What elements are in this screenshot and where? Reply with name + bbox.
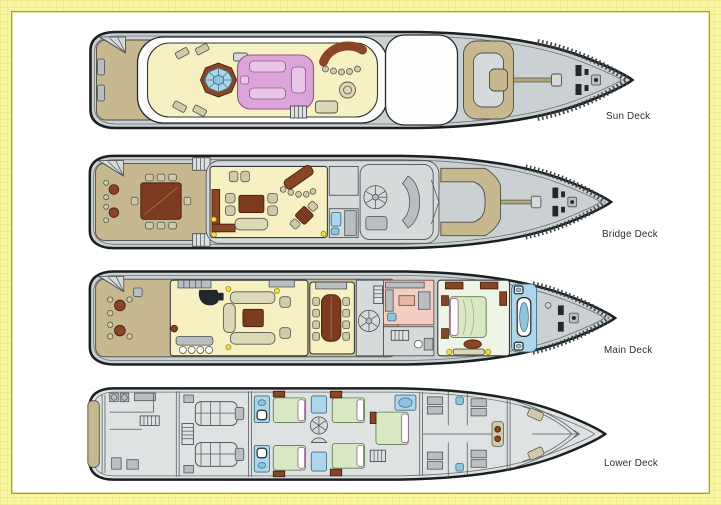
side-locker xyxy=(98,85,105,101)
king-bed xyxy=(449,297,486,338)
deck-label-sun: Sun Deck xyxy=(606,110,650,122)
main-deck-plan xyxy=(85,263,618,373)
aft-bench xyxy=(316,101,338,113)
bridge-deck-plan xyxy=(85,149,614,255)
crew-mess xyxy=(492,422,503,447)
side-locker xyxy=(98,59,105,75)
deck-label-bridge: Bridge Deck xyxy=(602,228,658,240)
galley xyxy=(383,280,433,325)
swim-platform xyxy=(88,401,99,468)
mast-structure xyxy=(464,41,514,119)
engine-starboard xyxy=(195,402,243,426)
engine-port xyxy=(195,443,243,467)
wheelhouse xyxy=(360,164,439,239)
spine-collar xyxy=(552,74,562,86)
sun-deck-plan xyxy=(85,27,636,133)
radar-hardtop xyxy=(386,35,458,125)
cocktail-table xyxy=(340,82,356,98)
jacuzzi xyxy=(201,63,237,97)
sun-pads xyxy=(238,55,314,109)
corridor-pantry xyxy=(383,327,433,356)
lower-deck-plan xyxy=(85,379,608,489)
yacht-deck-plans-page: Sun Deck xyxy=(0,0,721,505)
spiral-staircase xyxy=(358,310,379,331)
stairs-down xyxy=(291,106,307,118)
foyer xyxy=(356,280,383,356)
spiral-staircase xyxy=(364,186,387,209)
deck-label-lower: Lower Deck xyxy=(604,457,658,469)
deck-label-main: Main Deck xyxy=(604,344,652,356)
master-bath xyxy=(511,284,536,352)
spine-collar xyxy=(531,196,541,208)
